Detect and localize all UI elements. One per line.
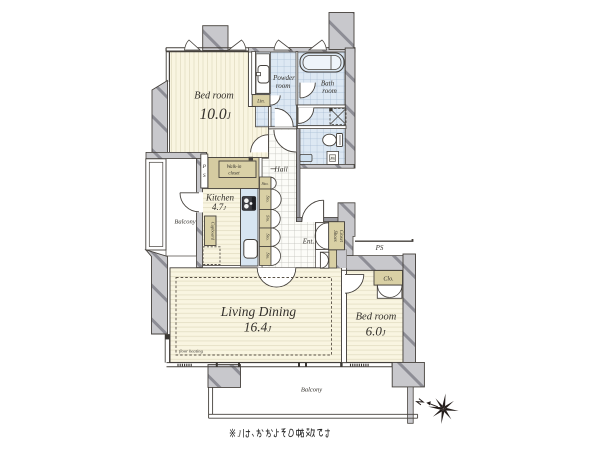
svg-text:Ent.: Ent. [302, 238, 315, 246]
svg-text:Closet: Closet [338, 230, 343, 243]
svg-text:Bed room: Bed room [194, 91, 234, 102]
svg-text:Living Dining: Living Dining [220, 304, 297, 319]
svg-text:room: room [322, 87, 337, 95]
svg-text:Sto.: Sto. [265, 234, 270, 241]
svg-text:Shoes: Shoes [332, 230, 337, 241]
svg-text:closet: closet [228, 172, 240, 177]
svg-text:Balcony: Balcony [174, 219, 195, 226]
svg-text:Sto.: Sto. [265, 252, 270, 259]
svg-text:Balcony: Balcony [301, 387, 322, 394]
svg-text:PS: PS [375, 244, 384, 252]
svg-text:P: P [202, 164, 207, 170]
svg-text:Sto.: Sto. [265, 215, 270, 222]
svg-text:Hall: Hall [273, 165, 287, 174]
svg-text:Kitchen: Kitchen [205, 193, 234, 203]
svg-text:Cupboard: Cupboard [211, 222, 216, 241]
svg-text:Sto.: Sto. [262, 181, 269, 186]
svg-text:Lin.: Lin. [256, 100, 265, 105]
svg-text:PS: PS [329, 156, 334, 161]
svg-text:Sto.: Sto. [265, 196, 270, 203]
svg-text:S: S [203, 173, 206, 179]
svg-text:Walk-in: Walk-in [227, 165, 242, 170]
svg-text:Bed room: Bed room [356, 312, 397, 323]
svg-text:Powder: Powder [272, 74, 295, 82]
svg-text:floor heating: floor heating [179, 348, 204, 353]
svg-text:room: room [276, 82, 291, 90]
svg-text:Clo.: Clo. [383, 276, 393, 282]
